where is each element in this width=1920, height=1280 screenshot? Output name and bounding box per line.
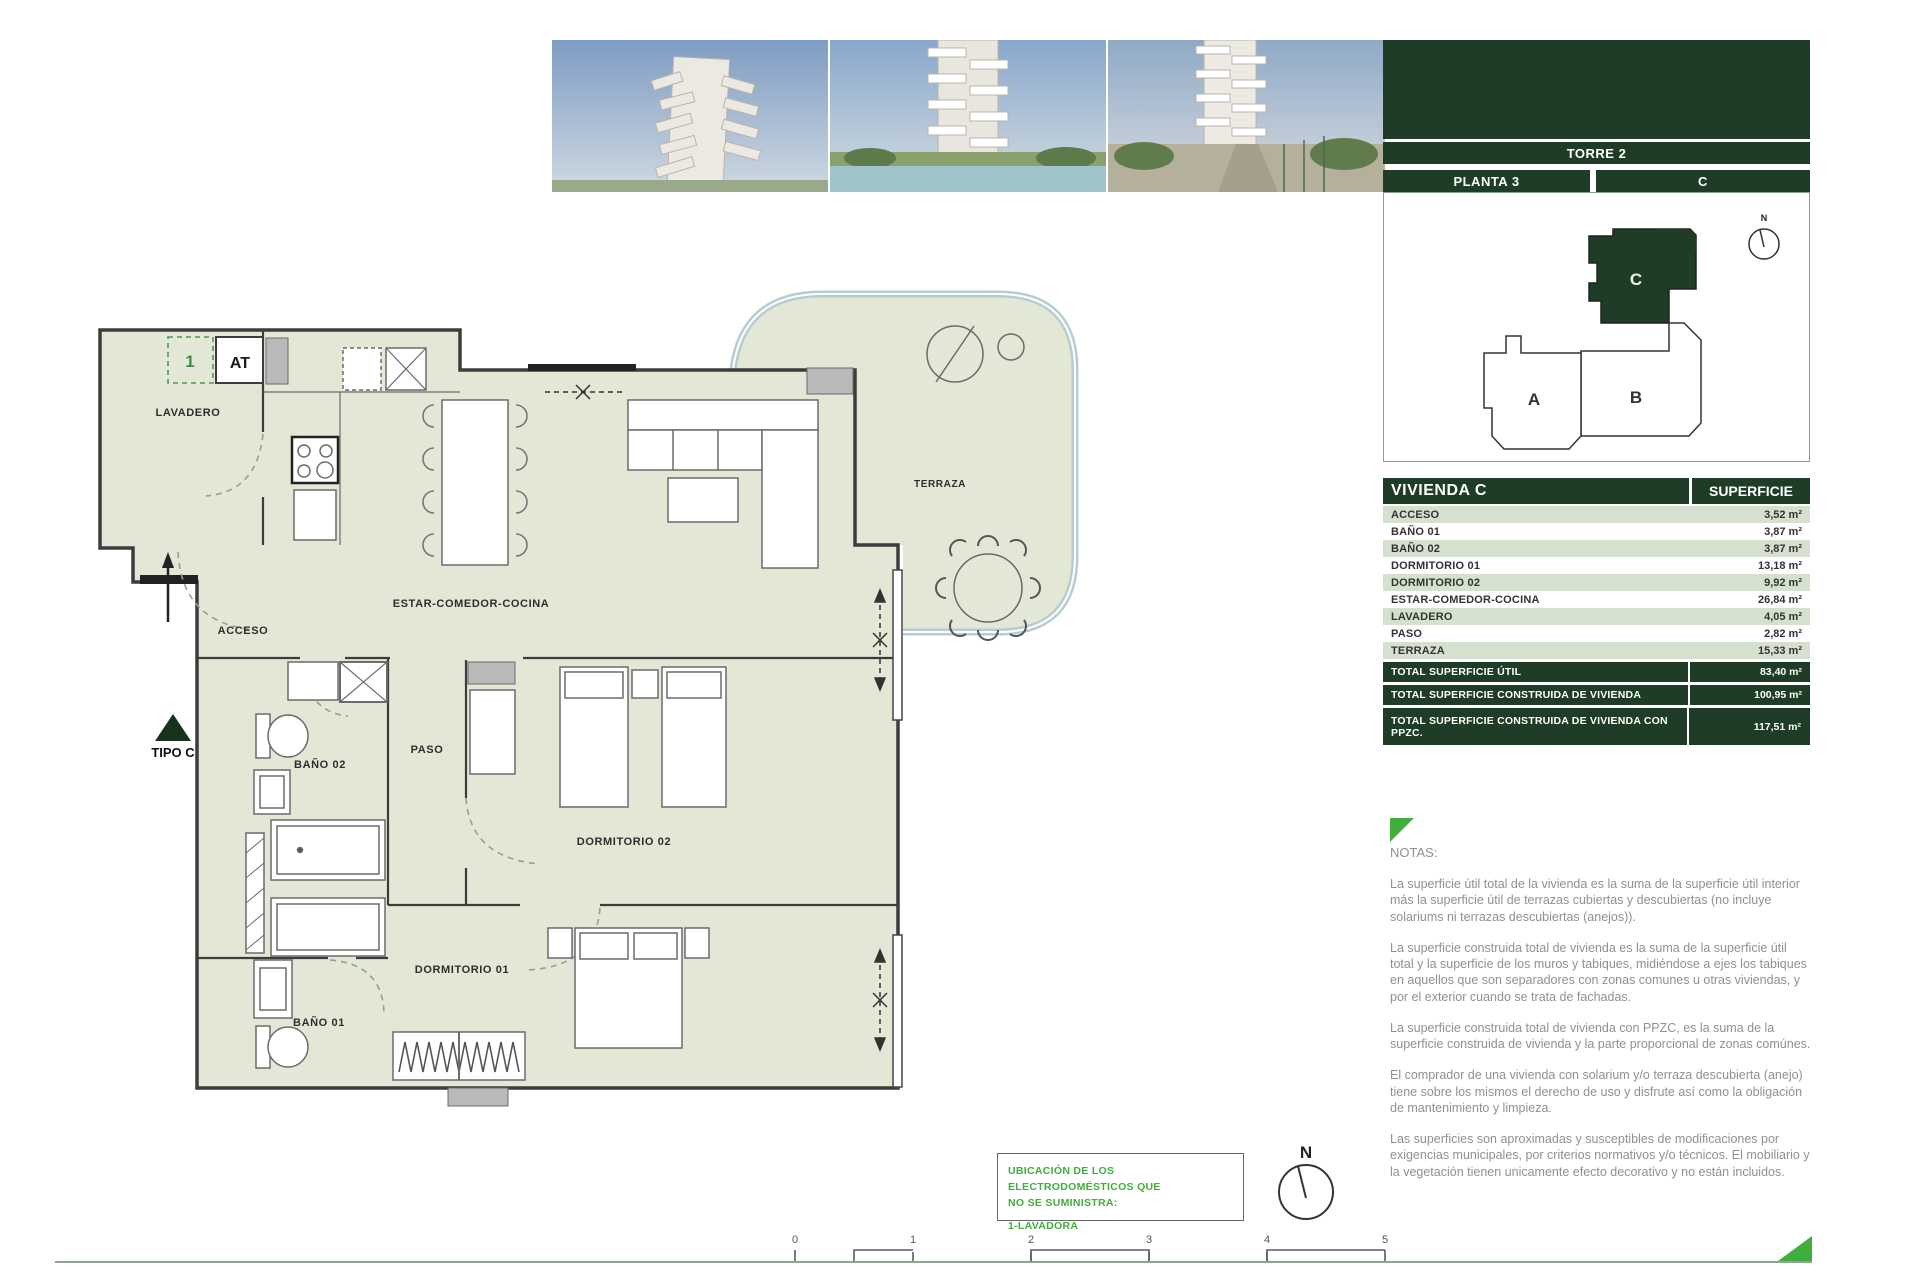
photo3-art [1108,40,1385,192]
toilet2-bowl [268,715,308,757]
surface-table: VIVIENDA C SUPERFICIE ACCESO 3,52 m² BAÑ… [1383,478,1810,745]
scale-labels: 0 1 2 3 4 5 [792,1234,1388,1246]
planta-label: PLANTA 3 [1453,174,1519,189]
total-util-row: TOTAL SUPERFICIE ÚTIL 83,40 m² [1383,662,1810,682]
label-terraza: TERRAZA [914,479,966,490]
note-paragraph: La superficie construida total de vivien… [1390,940,1812,1005]
bottom-corner-triangle [1778,1236,1812,1261]
note-paragraph: La superficie construida total de vivien… [1390,1020,1812,1053]
notes-paragraphs: La superficie útil total de la vivienda … [1390,876,1812,1180]
table-row: LAVADERO 4,05 m² [1383,608,1810,625]
torre-label: TORRE 2 [1567,146,1627,161]
key-label-a: A [1528,390,1540,409]
legend-line2: NO SE SUMINISTRA: [1008,1196,1233,1212]
label-bano01: BAÑO 01 [293,1016,345,1029]
table-rows: ACCESO 3,52 m² BAÑO 01 3,87 m² BAÑO 02 3… [1383,506,1810,659]
render-photo-1 [552,40,828,192]
nightstand1b [685,928,709,958]
north-compass-plan: N [1279,1143,1333,1219]
legend-line1: UBICACIÓN DE LOS ELECTRODOMÉSTICOS QUE [1008,1164,1233,1196]
north-compass-sidebar: N [1749,213,1779,259]
svg-text:3: 3 [1146,1234,1152,1246]
table-row: DORMITORIO 02 9,92 m² [1383,574,1810,591]
svg-text:1: 1 [910,1234,916,1246]
top-window-bar [528,364,636,371]
sofa-seat [628,430,762,470]
table-row: BAÑO 01 3,87 m² [1383,523,1810,540]
coffee-table [668,478,738,522]
svg-text:2: 2 [1028,1234,1034,1246]
dining-table [442,400,508,565]
label-bano02: BAÑO 02 [294,758,346,771]
legend-line3: 1-LAVADORA [1008,1219,1233,1235]
oven [294,490,336,540]
label-estar: ESTAR-COMEDOR-COCINA [393,598,550,610]
key-label-b: B [1630,388,1642,407]
torre-bar: TORRE 2 [1383,142,1810,164]
wardrobe2 [470,690,515,774]
table-row: BAÑO 02 3,87 m² [1383,540,1810,557]
at-label: AT [230,355,250,372]
table-row: PASO 2,82 m² [1383,625,1810,642]
key-shape-c-corner [1656,229,1696,251]
sidebar-header-block [1383,40,1810,139]
total-ppzc-row: TOTAL SUPERFICIE CONSTRUIDA DE VIVIENDA … [1383,708,1810,745]
tipo-c-triangle [155,714,191,741]
key-diagram-panel: A B C N [1383,192,1810,462]
appliance-legend-box: UBICACIÓN DE LOS ELECTRODOMÉSTICOS QUE N… [997,1153,1244,1221]
label-paso: PASO [411,744,444,756]
note-paragraph: El comprador de una vivienda con solariu… [1390,1067,1812,1116]
bottom-rule [55,1261,1812,1263]
table-row: TERRAZA 15,33 m² [1383,642,1810,659]
appliance-1-label: 1 [185,352,194,371]
nightstand2 [632,670,658,698]
label-lavadero: LAVADERO [156,407,221,419]
key-label-c: C [1630,270,1642,289]
table-row: DORMITORIO 01 13,18 m² [1383,557,1810,574]
north-label-plan: N [1300,1143,1312,1162]
render-photo-3 [1108,40,1385,192]
photo2-art [830,40,1106,192]
svg-text:0: 0 [792,1234,798,1246]
table-header-left: VIVIENDA C [1383,478,1689,504]
photo1-art [552,40,828,192]
table-row: ESTAR-COMEDOR-COCINA 26,84 m² [1383,591,1810,608]
note-paragraph: Las superficies son aproximadas y suscep… [1390,1131,1812,1180]
unit-cell: C [1596,170,1810,192]
nightstand1a [548,928,572,958]
render-photo-2 [830,40,1106,192]
fridge-dashed [343,348,381,390]
total-construida-row: TOTAL SUPERFICIE CONSTRUIDA DE VIVIENDA … [1383,685,1810,705]
sofa-chaise [762,430,818,568]
tipo-c-label: TIPO C [151,745,195,760]
toilet1-bowl [268,1027,308,1067]
label-acceso: ACCESO [218,625,269,637]
plan-sheet: LAVADERO ACCESO ESTAR-COMEDOR-COCINA PAS… [0,0,1920,1280]
notes-title: NOTAS: [1390,845,1812,860]
svg-text:5: 5 [1382,1234,1388,1246]
label-dorm02: DORMITORIO 02 [577,836,671,848]
label-dorm01: DORMITORIO 01 [415,964,509,976]
north-label-sidebar: N [1761,213,1768,223]
svg-text:4: 4 [1264,1234,1270,1246]
table-header-right: SUPERFICIE [1692,478,1810,504]
notes-block: NOTAS: La superficie útil total de la vi… [1390,845,1812,1195]
unit-label: C [1698,174,1708,189]
table-row: ACCESO 3,52 m² [1383,506,1810,523]
note-paragraph: La superficie útil total de la vivienda … [1390,876,1812,925]
sofa-back [628,400,818,430]
key-diagram: A B C N [1384,193,1809,461]
planta-cell: PLANTA 3 [1383,170,1590,192]
key-shape-b [1581,323,1701,436]
notes-corner-triangle [1390,818,1414,842]
